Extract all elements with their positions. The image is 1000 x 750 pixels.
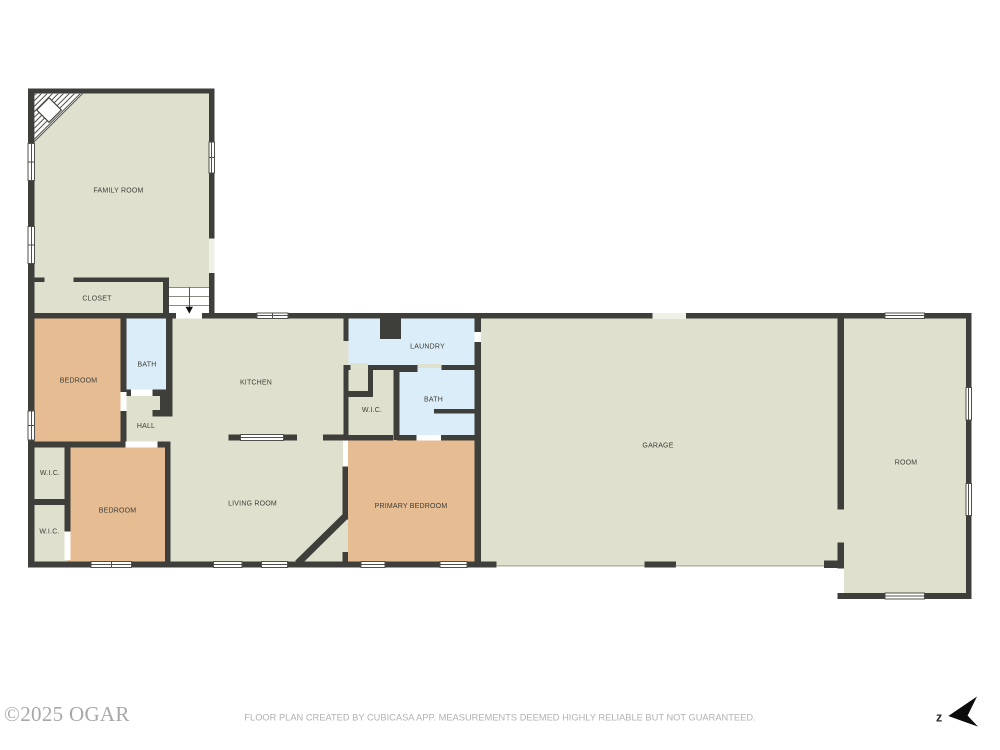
svg-text:LIVING ROOM: LIVING ROOM <box>228 501 277 508</box>
svg-text:PRIMARY BEDROOM: PRIMARY BEDROOM <box>375 503 448 510</box>
svg-text:HALL: HALL <box>137 423 155 430</box>
svg-text:©2025 OGAR: ©2025 OGAR <box>4 702 130 726</box>
svg-text:LAUNDRY: LAUNDRY <box>410 344 445 351</box>
svg-text:W.I.C.: W.I.C. <box>40 470 60 477</box>
svg-text:BEDROOM: BEDROOM <box>99 508 137 515</box>
svg-text:W.I.C.: W.I.C. <box>362 407 382 414</box>
svg-text:W.I.C.: W.I.C. <box>39 529 59 536</box>
svg-text:CLOSET: CLOSET <box>82 296 112 303</box>
svg-text:KITCHEN: KITCHEN <box>240 380 272 387</box>
svg-text:BATH: BATH <box>138 362 157 369</box>
svg-text:BATH: BATH <box>424 397 443 404</box>
svg-text:BEDROOM: BEDROOM <box>60 378 98 385</box>
svg-text:z: z <box>936 711 942 725</box>
svg-text:ROOM: ROOM <box>895 460 918 467</box>
svg-text:GARAGE: GARAGE <box>642 443 673 450</box>
svg-text:FLOOR PLAN CREATED BY CUBICASA: FLOOR PLAN CREATED BY CUBICASA APP. MEAS… <box>244 713 755 723</box>
svg-text:FAMILY ROOM: FAMILY ROOM <box>93 188 143 195</box>
